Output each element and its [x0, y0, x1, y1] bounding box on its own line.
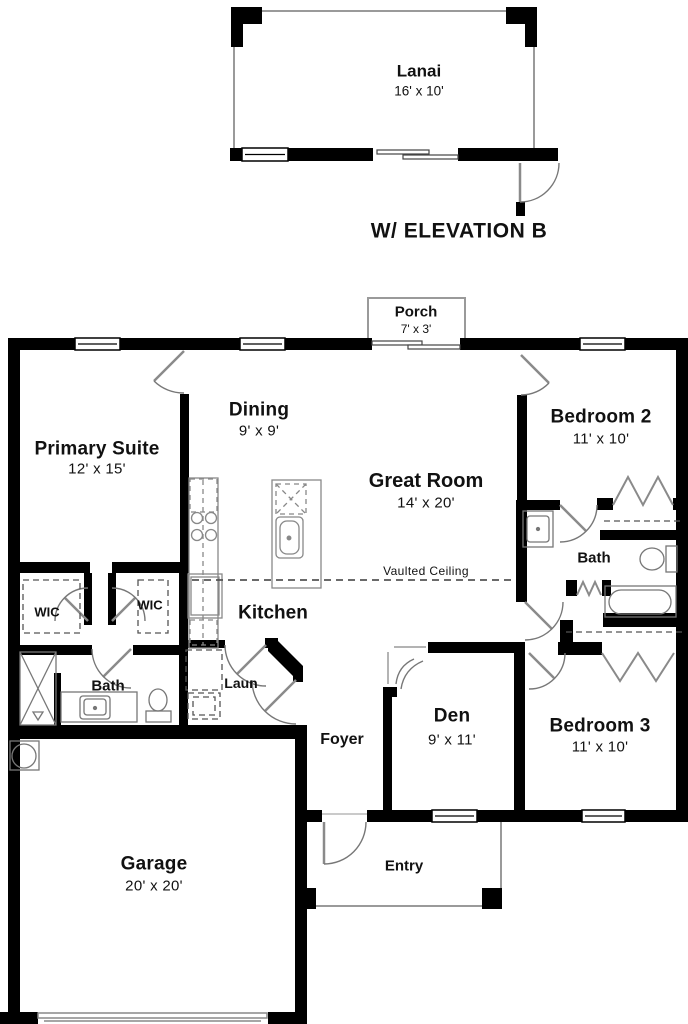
room-label-kitchen: Kitchen	[238, 604, 308, 623]
porch-sliding-door	[372, 341, 460, 349]
room-dims-bedroom2: 11' x 10'	[573, 432, 630, 447]
floor-plan: Lanai 16' x 10' W/ ELEVATION B Porch 7' …	[0, 0, 688, 1024]
bedroom3-closet-bifold	[602, 653, 674, 681]
primary-suite-door	[154, 351, 184, 393]
room-label-wic1: WIC	[34, 606, 59, 619]
room-label-porch: Porch	[395, 305, 438, 320]
floor-plan-drawing	[0, 0, 688, 1024]
kitchen-island	[272, 480, 321, 588]
washer-icon	[186, 650, 222, 690]
window	[580, 338, 625, 350]
room-dims-den: 9' x 11'	[428, 733, 476, 748]
rear-door	[520, 163, 559, 202]
island-sink-icon	[276, 517, 303, 558]
window	[240, 338, 285, 350]
room-dims-lanai: 16' x 10'	[394, 84, 443, 98]
wic1-door	[55, 588, 88, 621]
elevation-note: W/ ELEVATION B	[371, 221, 548, 242]
window	[75, 338, 120, 350]
room-label-primary-bath: Bath	[91, 679, 124, 694]
bedroom3-door	[529, 653, 565, 689]
toilet-icon	[640, 546, 677, 572]
window	[582, 810, 625, 822]
room-label-entry: Entry	[385, 859, 423, 874]
room-dims-great-room: 14' x 20'	[397, 496, 455, 511]
primary-bath-fixtures	[10, 652, 171, 770]
room-label-primary-suite: Primary Suite	[34, 440, 159, 459]
toilet-icon	[146, 689, 171, 722]
room-label-bedroom3: Bedroom 3	[549, 717, 650, 736]
room-label-dining: Dining	[229, 401, 289, 420]
vaulted-ceiling-note: Vaulted Ceiling	[383, 565, 469, 577]
vanity-sink-icon	[523, 511, 553, 547]
lanai-corner-posts	[231, 7, 537, 47]
bedroom2-closet-bifold	[613, 477, 673, 505]
shower-icon	[20, 652, 56, 725]
lanai-window	[242, 148, 288, 161]
room-label-hall-bath: Bath	[577, 551, 610, 566]
hall-bath-door	[560, 505, 597, 542]
bathtub-icon	[605, 586, 676, 617]
room-dims-dining: 9' x 9'	[239, 424, 279, 439]
room-label-den: Den	[434, 707, 471, 726]
kitchen-counter	[189, 478, 218, 648]
window	[432, 810, 477, 822]
room-label-bedroom2: Bedroom 2	[550, 408, 651, 427]
lanai-sliding-door	[377, 150, 458, 159]
garage-door	[38, 1013, 267, 1021]
laundry-foyer-door	[252, 680, 296, 724]
room-dims-porch: 7' x 3'	[401, 323, 432, 335]
room-label-foyer: Foyer	[320, 732, 364, 748]
front-door	[322, 814, 367, 864]
linen-bifold	[577, 582, 601, 595]
laundry-fixtures	[186, 650, 222, 719]
vanity-sink-icon	[61, 692, 137, 722]
room-dims-primary-suite: 12' x 15'	[68, 462, 126, 477]
bedroom2-door	[521, 355, 549, 395]
den-cased-opening	[388, 647, 426, 689]
stove-icon	[192, 513, 217, 541]
room-label-laundry: Laun	[224, 676, 257, 690]
hall-door	[525, 602, 563, 640]
room-label-garage: Garage	[121, 855, 188, 874]
room-dims-bedroom3: 11' x 10'	[572, 740, 629, 755]
room-label-great-room: Great Room	[369, 471, 483, 491]
room-dims-garage: 20' x 20'	[125, 879, 183, 894]
room-label-wic2: WIC	[137, 599, 162, 612]
lanai-outline	[234, 11, 534, 148]
room-label-lanai: Lanai	[397, 63, 441, 80]
